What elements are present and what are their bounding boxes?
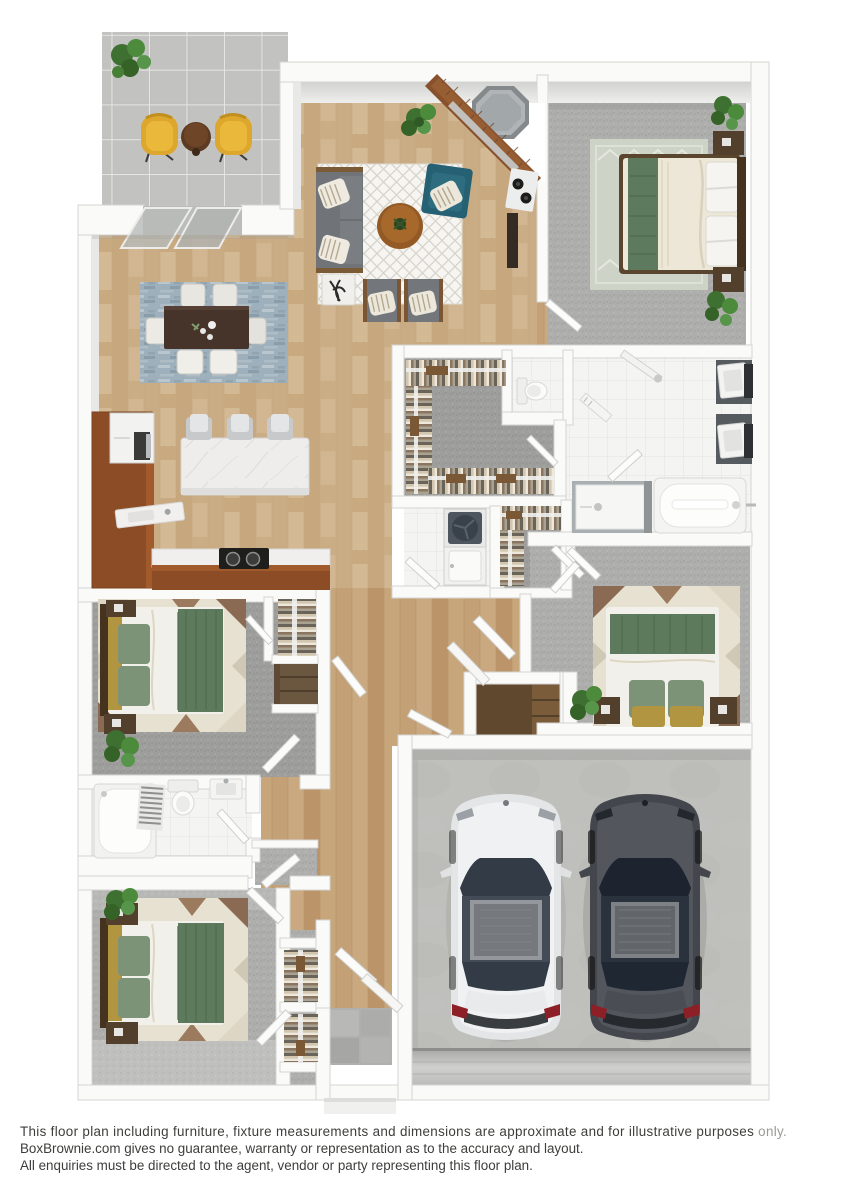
svg-text:This floor plan including furn: This floor plan including furniture, fix…	[20, 1124, 787, 1139]
svg-text:All enquiries must be directed: All enquiries must be directed to the ag…	[20, 1158, 533, 1173]
svg-text:BoxBrownie.com gives no guaran: BoxBrownie.com gives no guarantee, warra…	[20, 1141, 583, 1156]
